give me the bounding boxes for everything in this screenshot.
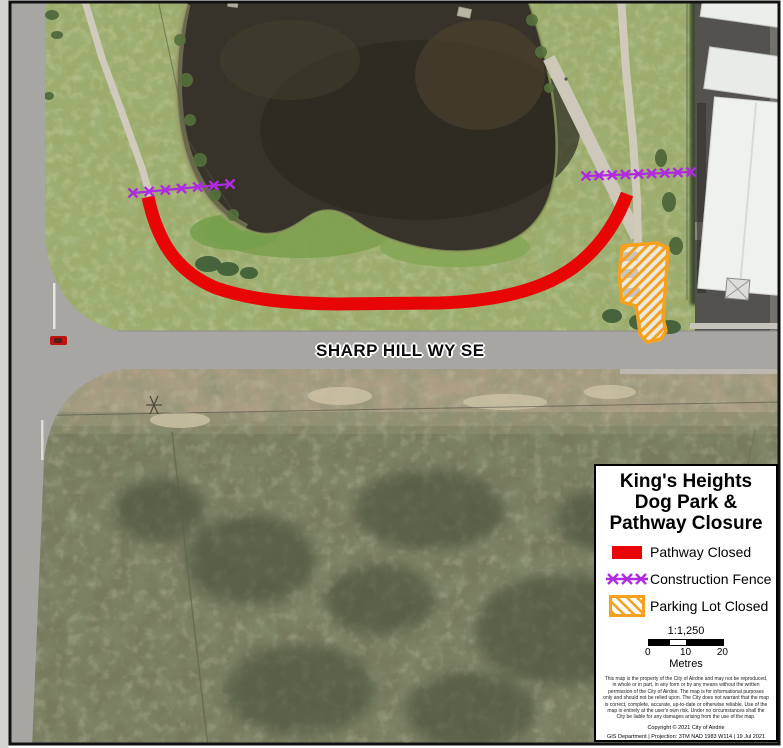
- construction-fence-swatch: [605, 571, 649, 587]
- credits-text: GIS Department | Projection: 3TM NAD 198…: [596, 734, 776, 740]
- copyright-text: Copyright © 2021 City of Airdrie: [596, 725, 776, 731]
- pathway-closed-swatch: [612, 546, 642, 559]
- shed-hut: [725, 278, 750, 300]
- legend-label: Construction Fence: [650, 571, 771, 587]
- legend-label: Parking Lot Closed: [650, 598, 768, 614]
- map-title-line3: Pathway Closure: [596, 513, 776, 534]
- car-on-road: [50, 336, 67, 345]
- legend-item-pathway-closed: Pathway Closed: [604, 540, 772, 564]
- disclaimer-text: This map is the property of the City of …: [603, 676, 769, 721]
- legend-item-construction-fence: Construction Fence: [604, 567, 772, 591]
- scale-bar: [648, 639, 724, 646]
- parking-lot-swatch: [609, 595, 645, 617]
- scale-ratio: 1:1,250: [596, 625, 776, 637]
- map-title: King's Heights Dog Park & Pathway Closur…: [596, 471, 776, 534]
- map-canvas: SHARP HILL WY SE King's Heights Dog Park…: [0, 0, 783, 748]
- scale-ticks: 0 10 20: [648, 647, 724, 658]
- scale-unit: Metres: [596, 658, 776, 670]
- legend-item-parking-lot-closed: Parking Lot Closed: [604, 594, 772, 618]
- scale-block: 1:1,250 0 10 20 Metres: [596, 625, 776, 670]
- page-margin: [0, 0, 9, 748]
- map-title-line1: King's Heights: [596, 471, 776, 492]
- map-title-line2: Dog Park &: [596, 492, 776, 513]
- street-label: SHARP HILL WY SE: [316, 341, 485, 361]
- legend-items: Pathway Closed Construction Fence: [596, 540, 776, 618]
- legend-panel: King's Heights Dog Park & Pathway Closur…: [594, 464, 778, 742]
- legend-label: Pathway Closed: [650, 544, 751, 560]
